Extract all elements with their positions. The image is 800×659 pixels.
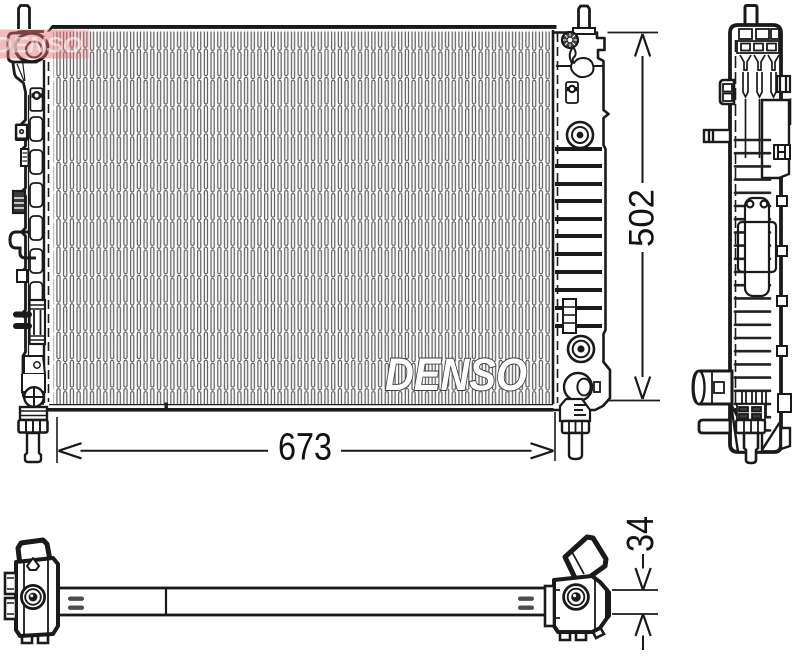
svg-text:DENSO: DENSO — [0, 33, 82, 58]
svg-text:502: 502 — [623, 189, 662, 247]
svg-text:DENSO: DENSO — [385, 349, 527, 400]
svg-text:673: 673 — [278, 427, 332, 469]
svg-text:34: 34 — [620, 516, 662, 552]
